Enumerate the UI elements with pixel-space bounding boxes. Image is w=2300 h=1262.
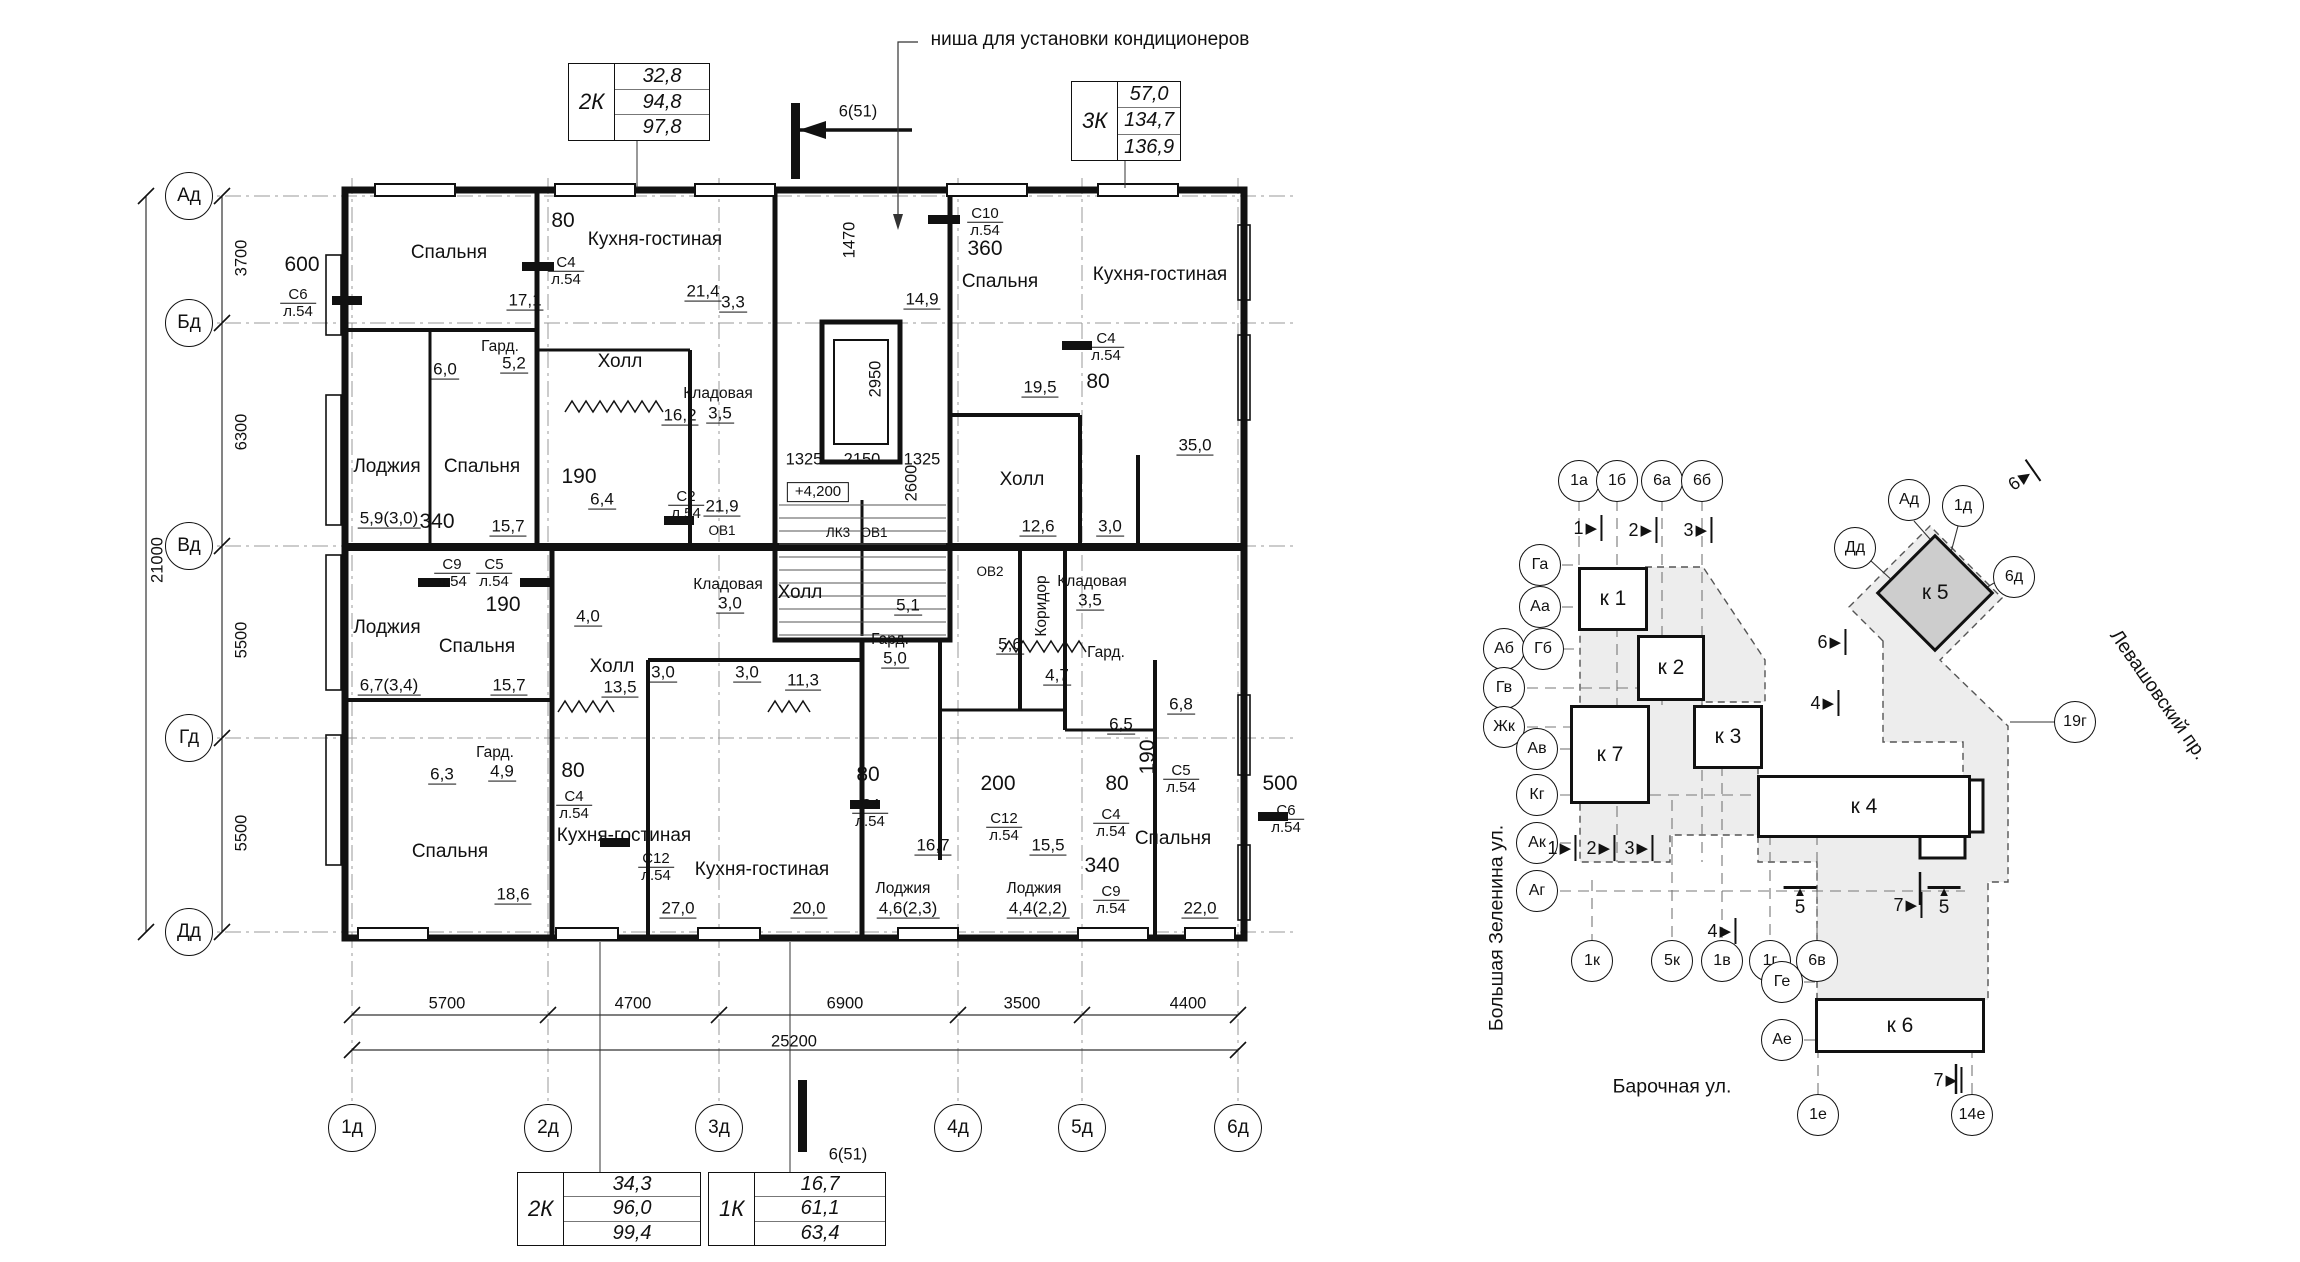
site-axis-bubble: Аа [1519, 586, 1561, 628]
site-axis-bubble: Дд [1834, 527, 1876, 569]
opening-width: 190 [1137, 739, 1159, 774]
area-value: 16,7 [914, 837, 951, 856]
area-value: 13,5 [601, 679, 638, 698]
area-value: 21,4 [684, 283, 721, 302]
sotka-label: С6л.54 [280, 287, 316, 320]
section-marker: 3▶ [1624, 835, 1653, 861]
site-axis-bubble: Гб [1522, 628, 1564, 670]
site-building: к 1 [1578, 567, 1648, 631]
site-axis-bubble: 14е [1951, 1094, 1993, 1136]
site-axis-bubble: 19г [2054, 701, 2096, 743]
area-value: 4,4(2,2) [1007, 900, 1070, 919]
site-building: к 5 [1876, 534, 1995, 653]
axis-bubble: Бд [165, 299, 213, 347]
sotka-label: С5л.54 [1163, 763, 1199, 796]
drawing-sheet: СпальняКухня-гостинаяСпальняКухня-гостин… [0, 0, 2300, 1262]
area-value: 5,6 [996, 636, 1024, 655]
tech-label: ОВ2 [976, 565, 1003, 579]
area-value: 6,8 [1167, 696, 1195, 715]
room-label: Холл [778, 583, 823, 603]
site-axis-bubble: Аб [1483, 628, 1525, 670]
area-value: 27,0 [659, 900, 696, 919]
dimension-text: 5700 [429, 995, 466, 1012]
area-value: 6,0 [431, 361, 459, 380]
dimension-text: 2950 [867, 361, 884, 398]
room-label: Гард. [1087, 645, 1125, 661]
area-row: 134,7 [1118, 108, 1180, 134]
axis-bubble: 4д [934, 1104, 982, 1152]
apartment-type: 2К [518, 1173, 564, 1245]
apartment-area-table: 2К34,396,099,4 [517, 1172, 701, 1246]
axis-bubble: Вд [165, 522, 213, 570]
site-axis-bubble: 1б [1596, 460, 1638, 502]
room-label: Лоджия [353, 618, 420, 638]
dimension-text: 2600 [903, 465, 920, 502]
area-value: 15,5 [1029, 837, 1066, 856]
area-value: 4,6(2,3) [877, 900, 940, 919]
dimension-text: 6900 [827, 995, 864, 1012]
area-value: 4,9 [488, 763, 516, 782]
sotka-label: С10л.54 [967, 206, 1003, 239]
opening-width: 80 [856, 764, 879, 786]
site-axis-bubble: 5к [1651, 940, 1693, 982]
site-building: к 2 [1637, 635, 1705, 701]
sotka-label: С2л.54 [668, 489, 704, 522]
room-label: Кухня-гостиная [557, 826, 691, 846]
elevation-mark: +4,200 [787, 482, 849, 502]
dimension-text: 25200 [771, 1033, 817, 1050]
dimension-text: 3500 [1004, 995, 1041, 1012]
section-marker: 3▶ [1683, 517, 1712, 543]
area-value: 12,6 [1019, 518, 1056, 537]
area-value: 14,9 [903, 291, 940, 310]
area-value: 3,0 [649, 664, 677, 683]
site-axis-bubble: Ад [1888, 479, 1930, 521]
room-label: Кухня-гостиная [1093, 265, 1227, 285]
axis-bubble: Дд [165, 908, 213, 956]
sotka-label: С12л.54 [638, 851, 674, 884]
site-axis-bubble: Ге [1761, 961, 1803, 1003]
room-label: Гард. [476, 745, 514, 761]
room-label: Кладовая [1057, 574, 1126, 590]
area-row: 34,3 [564, 1173, 700, 1197]
site-axis-bubble: Аг [1516, 870, 1558, 912]
room-label: Спальня [962, 272, 1038, 292]
area-row: 61,1 [755, 1197, 885, 1221]
section-marker: 2▶ [1628, 517, 1657, 543]
site-building: к 6 [1815, 998, 1985, 1053]
dimension-text: 21000 [149, 537, 166, 583]
dimension-text: 6300 [233, 414, 250, 451]
opening-width: 80 [561, 760, 584, 782]
area-row: 57,0 [1118, 82, 1180, 108]
opening-width: 200 [980, 773, 1015, 795]
area-value: 4,0 [574, 608, 602, 627]
dimension-text: 6(51) [839, 103, 878, 120]
dimension-text: 3700 [233, 240, 250, 277]
area-row: 32,8 [615, 64, 709, 90]
area-value: 3,3 [719, 294, 747, 313]
area-value: 20,0 [790, 900, 827, 919]
section-marker: 7▶ [1933, 1067, 1962, 1093]
dimension-text: 1325 [904, 451, 941, 468]
room-label: Кухня-гостиная [695, 860, 829, 880]
section-marker: 4▶ [1707, 918, 1736, 944]
room-label: Кухня-гостиная [588, 230, 722, 250]
axis-bubble: 5д [1058, 1104, 1106, 1152]
building-label: к 5 [1922, 581, 1949, 605]
site-axis-bubble: 1д [1942, 485, 1984, 527]
section-marker: 6▶ [1817, 629, 1846, 655]
section-flag: ▲5 [1784, 886, 1817, 917]
opening-width: 340 [419, 511, 454, 533]
opening-width: 80 [1086, 371, 1109, 393]
apartment-area-table: 3К57,0134,7136,9 [1071, 81, 1181, 161]
site-axis-bubble: 1в [1701, 940, 1743, 982]
area-row: 99,4 [564, 1222, 700, 1245]
area-value: 16,2 [661, 407, 698, 426]
area-row: 96,0 [564, 1197, 700, 1221]
opening-width: 80 [1105, 773, 1128, 795]
sotka-label: С6л.54 [1268, 803, 1304, 836]
room-label: Спальня [412, 842, 488, 862]
room-label: Гард. [871, 632, 909, 648]
area-value: 6,4 [588, 491, 616, 510]
area-value: 5,9(3,0) [358, 510, 421, 529]
area-value: 4,7 [1043, 667, 1071, 686]
area-value: 6,7(3,4) [358, 677, 421, 696]
area-row: 16,7 [755, 1173, 885, 1197]
room-label: Лоджия [876, 881, 931, 897]
section-marker: 1▶ [1547, 835, 1576, 861]
dimension-text: 4400 [1170, 995, 1207, 1012]
room-label: Спальня [439, 637, 515, 657]
site-building: к 4 [1757, 775, 1971, 838]
section-marker: 4▶ [1810, 690, 1839, 716]
site-building: к 3 [1693, 705, 1763, 769]
site-axis-bubble: Га [1519, 544, 1561, 586]
site-building: к 7 [1570, 705, 1650, 804]
area-value: 18,6 [494, 886, 531, 905]
opening-width: 600 [284, 254, 319, 276]
sotka-label: С12л.54 [986, 811, 1022, 844]
site-axis-bubble: 1а [1558, 460, 1600, 502]
apartment-type: 3К [1072, 82, 1118, 160]
area-value: 35,0 [1176, 437, 1213, 456]
area-value: 3,0 [1096, 518, 1124, 537]
room-label: Лоджия [1007, 881, 1062, 897]
axis-bubble: 3д [695, 1104, 743, 1152]
site-axis-bubble: Кг [1516, 774, 1558, 816]
room-label: Лоджия [353, 457, 420, 477]
area-value: 22,0 [1181, 900, 1218, 919]
apartment-area-table: 2К32,894,897,8 [568, 63, 710, 141]
room-label: Холл [1000, 470, 1045, 490]
area-value: 5,0 [881, 650, 909, 669]
site-axis-bubble: 6д [1993, 556, 2035, 598]
area-value: 15,7 [490, 677, 527, 696]
room-label: Спальня [444, 457, 520, 477]
axis-bubble: 6д [1214, 1104, 1262, 1152]
annotation-overlay: СпальняКухня-гостинаяСпальняКухня-гостин… [0, 0, 2300, 1262]
street-name: Барочная ул. [1613, 1076, 1732, 1099]
sotka-label: С4л.54 [548, 255, 584, 288]
aircon-niche-note: ниша для установки кондиционеров [931, 30, 1250, 50]
room-label: Холл [598, 352, 643, 372]
sotka-label: С5л.54 [476, 557, 512, 590]
opening-width: 80 [551, 210, 574, 232]
area-row: 97,8 [615, 115, 709, 140]
tech-label: ОВ1 [708, 524, 735, 538]
room-label: Спальня [1135, 829, 1211, 849]
area-row: 94,8 [615, 90, 709, 116]
site-axis-bubble: Гв [1483, 667, 1525, 709]
opening-width: 500 [1262, 773, 1297, 795]
opening-width: 360 [967, 238, 1002, 260]
apartment-type: 2К [569, 64, 615, 140]
section-marker: 7▶ [1893, 892, 1922, 918]
site-axis-bubble: Ав [1516, 728, 1558, 770]
area-value: 6,3 [428, 766, 456, 785]
tech-label: ОВ1 [860, 526, 887, 540]
dimension-text: 1325 [786, 451, 823, 468]
area-value: 5,2 [500, 355, 528, 374]
site-axis-bubble: 1к [1571, 940, 1613, 982]
axis-bubble: Ад [165, 172, 213, 220]
area-value: 15,7 [489, 518, 526, 537]
opening-width: 190 [561, 466, 596, 488]
area-value: 11,3 [785, 672, 821, 691]
dimension-text: 6(51) [829, 1146, 868, 1163]
opening-width: 190 [485, 594, 520, 616]
area-value: 6,5 [1107, 716, 1135, 735]
area-value: 3,0 [716, 595, 744, 614]
apartment-type: 1К [709, 1173, 755, 1245]
room-label: Коридор [1034, 575, 1050, 636]
street-name: Левашовский пр. [2105, 626, 2212, 765]
opening-width: 340 [1084, 855, 1119, 877]
area-value: 3,5 [1076, 592, 1104, 611]
sotka-label: С4л.54 [556, 789, 592, 822]
tech-label: ЛК3 [826, 526, 850, 540]
axis-bubble: 2д [524, 1104, 572, 1152]
area-value: 5,1 [894, 597, 922, 616]
area-row: 63,4 [755, 1222, 885, 1245]
section-marker: 1▶ [1573, 515, 1602, 541]
sotka-label: С4л.54 [852, 797, 888, 830]
area-value: 3,5 [706, 405, 734, 424]
area-value: 19,5 [1021, 379, 1058, 398]
dimension-text: 1470 [841, 222, 858, 259]
site-axis-bubble: Ае [1761, 1019, 1803, 1061]
room-label: Спальня [411, 243, 487, 263]
site-axis-bubble: 1е [1797, 1094, 1839, 1136]
room-label: Кладовая [683, 386, 752, 402]
dimension-text: 2150 [844, 451, 881, 468]
room-label: Холл [590, 657, 635, 677]
sotka-label: С4л.54 [1093, 807, 1129, 840]
axis-bubble: Гд [165, 714, 213, 762]
dimension-text: 4700 [615, 995, 652, 1012]
sotka-label: С9л.54 [434, 557, 470, 590]
site-axis-bubble: 6а [1641, 460, 1683, 502]
site-axis-bubble: 6б [1681, 460, 1723, 502]
axis-bubble: 1д [328, 1104, 376, 1152]
street-name: Большая Зеленина ул. [1486, 825, 1509, 1031]
room-label: Кладовая [693, 577, 762, 593]
section-marker: 2▶ [1586, 835, 1615, 861]
dimension-text: 5500 [233, 622, 250, 659]
sotka-label: С4л.54 [1088, 331, 1124, 364]
apartment-area-table: 1К16,761,163,4 [708, 1172, 886, 1246]
sotka-label: С9л.54 [1093, 884, 1129, 917]
section-marker: 6▶ [2003, 459, 2042, 497]
area-value: 21,9 [703, 498, 740, 517]
area-value: 17,1 [506, 292, 543, 311]
dimension-text: 5500 [233, 815, 250, 852]
section-flag: ▲5 [1928, 886, 1961, 917]
area-row: 136,9 [1118, 135, 1180, 160]
area-value: 3,0 [733, 664, 761, 683]
